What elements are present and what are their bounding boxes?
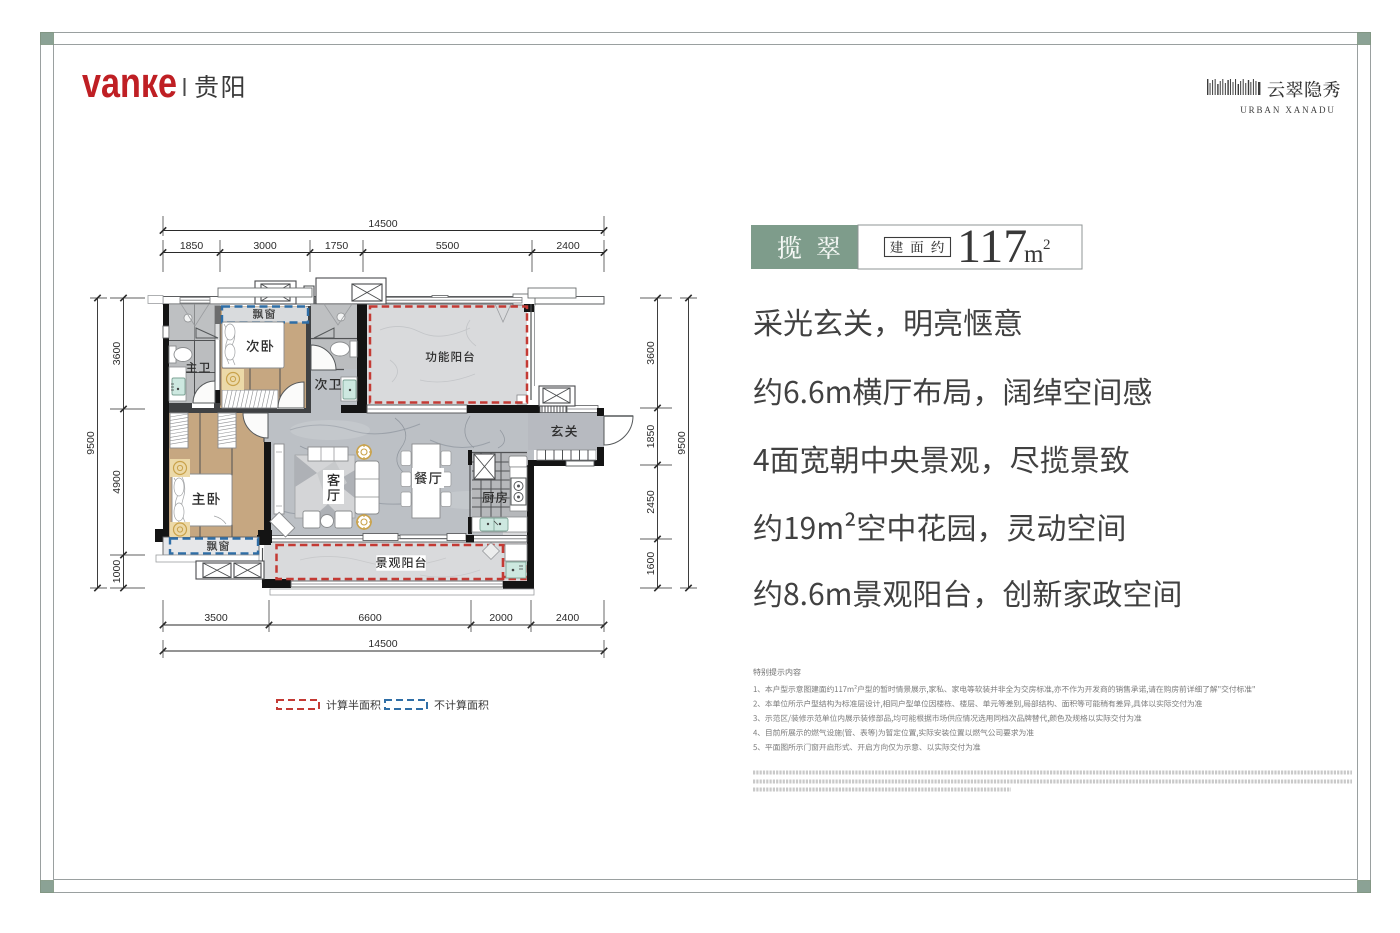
svg-text:URBAN XANADU: URBAN XANADU bbox=[1240, 105, 1336, 115]
svg-text:9500: 9500 bbox=[676, 431, 688, 455]
svg-text:14500: 14500 bbox=[368, 638, 397, 650]
svg-text:1600: 1600 bbox=[645, 552, 657, 576]
svg-text:6600: 6600 bbox=[358, 612, 382, 624]
svg-text:9500: 9500 bbox=[85, 431, 97, 455]
svg-text:2400: 2400 bbox=[556, 240, 580, 252]
svg-text:3600: 3600 bbox=[111, 342, 123, 366]
svg-text:1850: 1850 bbox=[180, 240, 204, 252]
svg-text:117: 117 bbox=[957, 220, 1027, 273]
svg-text:2000: 2000 bbox=[489, 612, 513, 624]
svg-text:m: m bbox=[1024, 241, 1044, 268]
svg-text:2400: 2400 bbox=[556, 612, 580, 624]
svg-text:1000: 1000 bbox=[111, 560, 123, 584]
svg-text:2: 2 bbox=[1043, 237, 1051, 253]
svg-text:3500: 3500 bbox=[204, 612, 228, 624]
svg-text:3600: 3600 bbox=[645, 341, 657, 365]
svg-text:5500: 5500 bbox=[436, 240, 460, 252]
svg-text:vanкe: vanкe bbox=[82, 59, 177, 106]
svg-text:14500: 14500 bbox=[368, 218, 397, 230]
svg-text:1850: 1850 bbox=[645, 425, 657, 449]
svg-text:3000: 3000 bbox=[253, 240, 277, 252]
svg-text:2450: 2450 bbox=[645, 490, 657, 514]
svg-text:1750: 1750 bbox=[325, 240, 349, 252]
svg-text:4900: 4900 bbox=[111, 470, 123, 494]
